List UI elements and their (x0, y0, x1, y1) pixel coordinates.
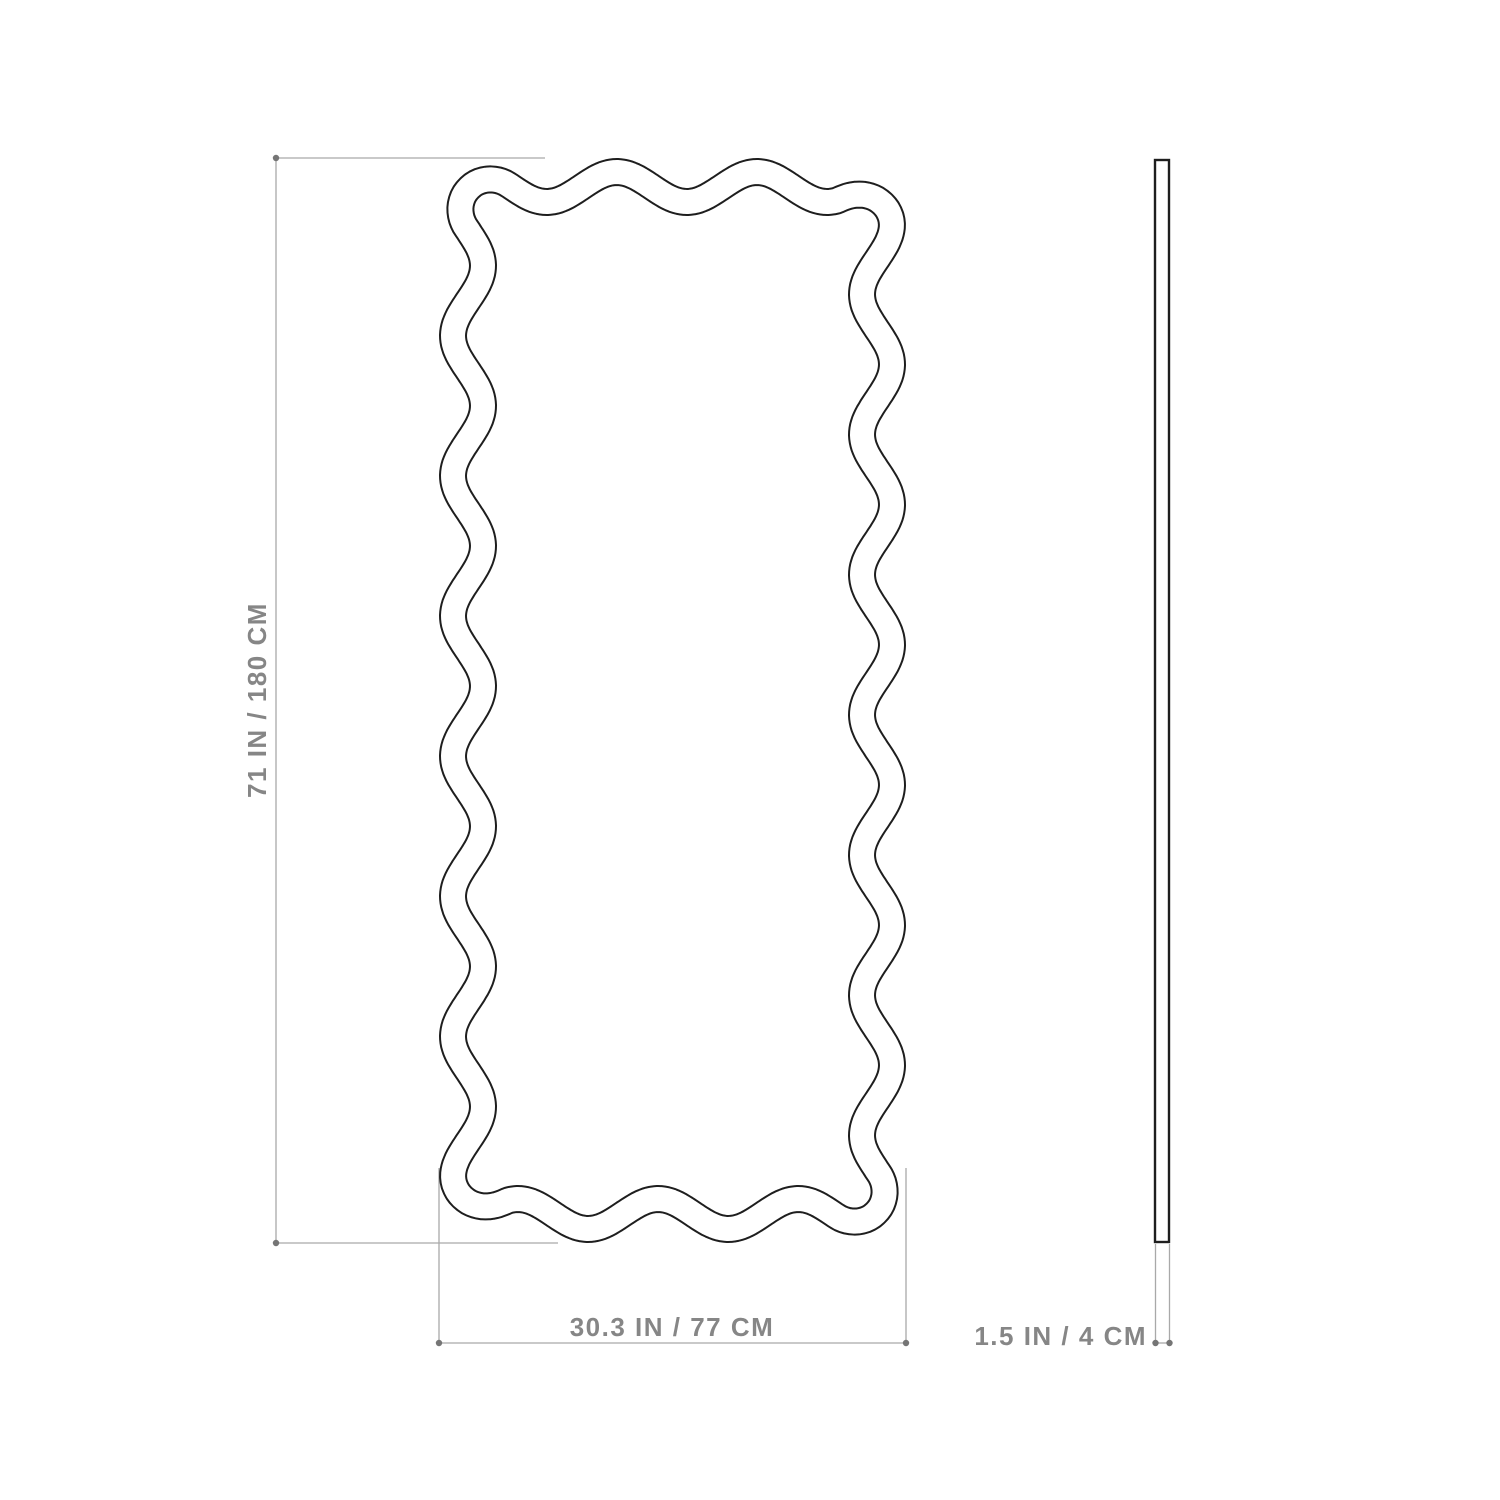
dimension-endpoint-dot (1166, 1340, 1172, 1346)
depth-dimension: 1.5 IN / 4 CM (974, 1244, 1172, 1351)
height-dimension-label: 71 IN / 180 CM (242, 602, 272, 798)
mirror-front-view (453, 172, 892, 1229)
mirror-side-profile (1155, 160, 1169, 1242)
depth-dimension-label: 1.5 IN / 4 CM (974, 1321, 1147, 1351)
dimension-endpoint-dot (1152, 1340, 1158, 1346)
dimension-endpoint-dot (436, 1340, 442, 1346)
mirror-dimension-diagram: 71 IN / 180 CM 30.3 IN / 77 CM 1. (0, 0, 1500, 1500)
width-dimension-label: 30.3 IN / 77 CM (570, 1312, 775, 1342)
mirror-frame-inner-fill (453, 172, 892, 1229)
dimension-endpoint-dot (273, 1240, 279, 1246)
height-dimension: 71 IN / 180 CM (242, 155, 558, 1246)
mirror-side-view (1155, 160, 1169, 1242)
mirror-frame-outer-outline (453, 172, 892, 1229)
dimension-endpoint-dot (903, 1340, 909, 1346)
dimension-endpoint-dot (273, 155, 279, 161)
technical-drawing-page: 71 IN / 180 CM 30.3 IN / 77 CM 1. (0, 0, 1500, 1500)
